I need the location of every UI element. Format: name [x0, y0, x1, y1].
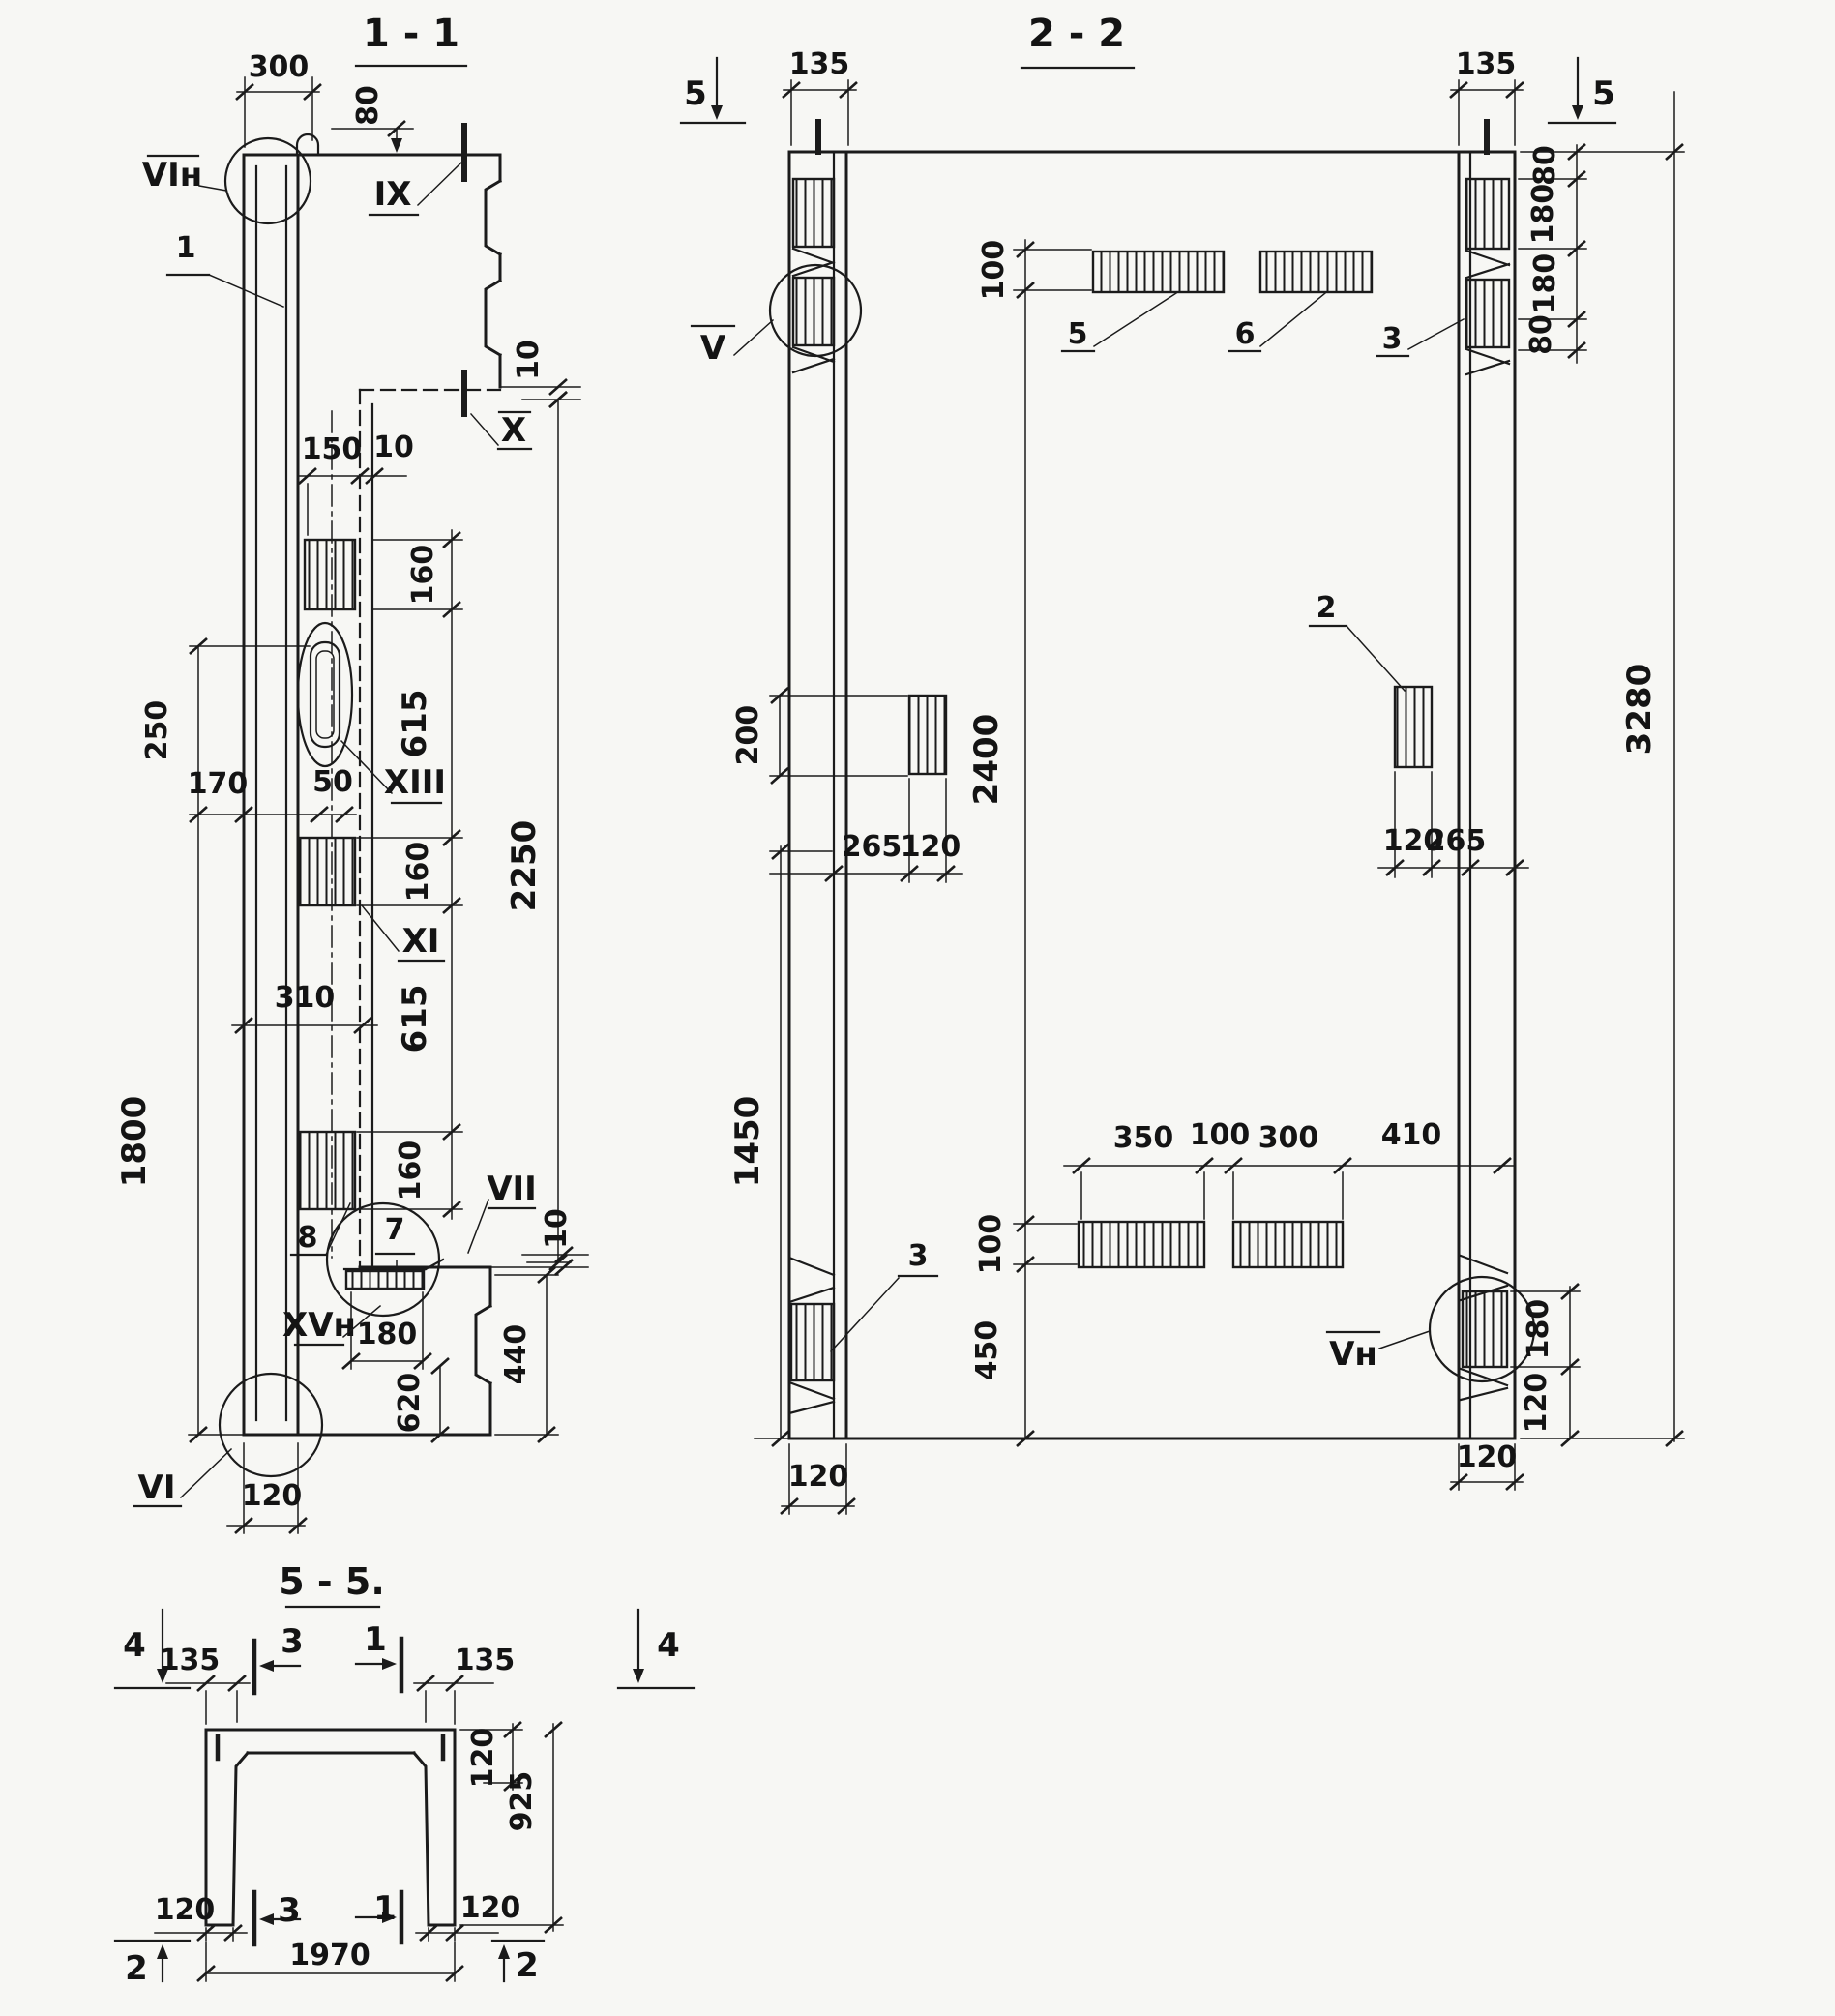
- cut-marker-4-left: 4: [123, 1626, 146, 1665]
- dim-135-left: 135: [160, 1644, 221, 1677]
- dim-80: 80: [351, 85, 385, 126]
- cut-marker-2-right: 2: [516, 1946, 539, 1985]
- cut-marker-4-right: 4: [657, 1626, 680, 1665]
- dim-925: 925: [505, 1771, 539, 1832]
- label-vin: VIн: [142, 156, 202, 194]
- dim-1450: 1450: [728, 1096, 767, 1188]
- dim-80-b: 80: [1524, 314, 1558, 355]
- dim-160-b: 160: [401, 842, 435, 903]
- embedded-plate: [909, 696, 946, 774]
- dim-350: 350: [1113, 1121, 1174, 1155]
- drawing-sheet: 1 - 1 7: [0, 0, 1835, 2016]
- label-vii: VII: [487, 1170, 537, 1208]
- dim-120-bottom-right: 120: [1457, 1440, 1518, 1474]
- dim-180-c: 180: [1522, 1299, 1555, 1360]
- dim-120-top-right: 120: [466, 1728, 500, 1789]
- rebar-mark: [218, 1736, 443, 1759]
- dim-50: 50: [312, 765, 353, 799]
- dim-3280: 3280: [1620, 664, 1659, 756]
- dim-250: 250: [140, 700, 174, 761]
- dim-440: 440: [499, 1324, 533, 1385]
- dim-180-b: 180: [1528, 253, 1562, 314]
- label-xiii: XIII: [384, 763, 446, 802]
- dim-160-c: 160: [394, 1141, 428, 1201]
- cut-marker-5-right: 5: [1592, 74, 1615, 113]
- dim-170: 170: [188, 767, 249, 801]
- section-1-1: 1 - 1 7: [115, 12, 588, 1533]
- dim-200: 200: [731, 705, 765, 766]
- dim-265-right: 265: [1426, 824, 1487, 858]
- dim-10-top: 10: [512, 340, 546, 380]
- callout-5: 5: [1068, 317, 1088, 351]
- dim-265-left: 265: [842, 830, 903, 864]
- dim-310: 310: [275, 981, 336, 1015]
- label-xi: XI: [402, 922, 440, 961]
- engineering-drawing: 1 - 1 7: [0, 0, 1835, 2016]
- section-5-5-dimensions: 4 4 135 135 3 1 3 1 120 120 1970 2 2: [115, 1610, 694, 1988]
- dim-120-bottom-left: 120: [788, 1460, 849, 1494]
- dim-615-b: 615: [396, 985, 434, 1053]
- dim-180: 180: [357, 1318, 418, 1351]
- section-1-1-title: 1 - 1: [363, 12, 459, 56]
- label-vi: VI: [138, 1468, 176, 1507]
- section-2-2: 2 - 2: [681, 12, 1684, 1514]
- right-rib-keys: [1461, 179, 1509, 1400]
- dim-450: 450: [970, 1320, 1004, 1381]
- callout-2: 2: [1317, 591, 1337, 625]
- dim-2400: 2400: [967, 714, 1006, 806]
- section-2-2-title: 2 - 2: [1028, 12, 1125, 56]
- dim-615-a: 615: [396, 690, 434, 758]
- label-v: V: [700, 329, 726, 368]
- dim-100-row: 100: [1190, 1118, 1251, 1152]
- callout-3-bottom: 3: [908, 1239, 929, 1273]
- embedded-strip: [1233, 1222, 1343, 1267]
- callout-1: 1: [176, 231, 196, 265]
- dim-2250: 2250: [505, 820, 544, 912]
- dim-160-a: 160: [406, 545, 440, 606]
- section-5-5-outline: [206, 1730, 455, 1925]
- section-2-2-labels: V 5 6 3 2 3 Vн: [692, 293, 1464, 1374]
- embedded-strip-6: [1260, 252, 1372, 292]
- dim-410: 410: [1381, 1118, 1442, 1152]
- embedded-plate: [298, 1132, 355, 1209]
- label-x: X: [501, 411, 526, 450]
- cut-marker-5-left: 5: [684, 74, 707, 113]
- embedded-plate: [300, 838, 355, 905]
- left-rib-keys: [789, 179, 834, 1413]
- section-1-1-outline: [244, 126, 500, 1435]
- cut-mark-3-bottom: 3: [278, 1891, 301, 1930]
- dim-1970: 1970: [289, 1939, 370, 1972]
- dim-620: 620: [393, 1373, 427, 1434]
- dim-300: 300: [249, 50, 310, 84]
- label-vn: Vн: [1329, 1335, 1377, 1374]
- dim-120: 120: [242, 1479, 303, 1513]
- dim-100-mid: 100: [974, 1214, 1008, 1275]
- dim-150: 150: [302, 432, 363, 466]
- dim-10-mid: 10: [373, 430, 414, 464]
- dim-120-left: 120: [901, 830, 962, 864]
- cut-marker-2-left: 2: [125, 1949, 148, 1988]
- dim-120-bottom-right: 120: [460, 1891, 521, 1925]
- cut-mark-1-bottom: 1: [373, 1889, 397, 1928]
- dim-120-c: 120: [1520, 1373, 1554, 1434]
- callout-8: 8: [298, 1221, 318, 1255]
- cut-mark-3-top: 3: [281, 1622, 304, 1661]
- dim-300: 300: [1258, 1121, 1319, 1155]
- section-5-5-title: 5 - 5.: [279, 1560, 385, 1603]
- dim-135-right: 135: [455, 1644, 516, 1677]
- slot-detail: [298, 623, 352, 766]
- dim-180-a: 180: [1526, 184, 1560, 245]
- weld-detail: 7: [327, 1203, 443, 1316]
- section-5-5: 5 - 5. 4 4 135 135 3 1 3 1 120 120: [115, 1560, 694, 1988]
- embedded-plate: [305, 540, 355, 609]
- dim-10-bottom: 10: [540, 1208, 574, 1249]
- section-1-1-labels: VIн 1 IX X XIII XI 8 VII XVн VI: [134, 156, 537, 1507]
- cut-mark-1-top: 1: [364, 1620, 387, 1659]
- embedded-strip: [1079, 1222, 1204, 1267]
- dim-120-bottom-left: 120: [155, 1893, 216, 1927]
- label-ix: IX: [374, 175, 412, 214]
- dim-100-top: 100: [977, 240, 1011, 301]
- callout-3-top: 3: [1382, 322, 1403, 356]
- callout-6: 6: [1235, 317, 1256, 351]
- callout-7: 7: [385, 1213, 405, 1247]
- embedded-strip-5: [1093, 252, 1224, 292]
- label-xvn: XVн: [282, 1306, 356, 1345]
- embedded-plate-2: [1395, 687, 1432, 767]
- detail-circle-vi: [220, 1374, 322, 1476]
- dim-1800: 1800: [115, 1096, 154, 1188]
- dim-135-right: 135: [1456, 47, 1517, 81]
- dim-135-left: 135: [789, 47, 850, 81]
